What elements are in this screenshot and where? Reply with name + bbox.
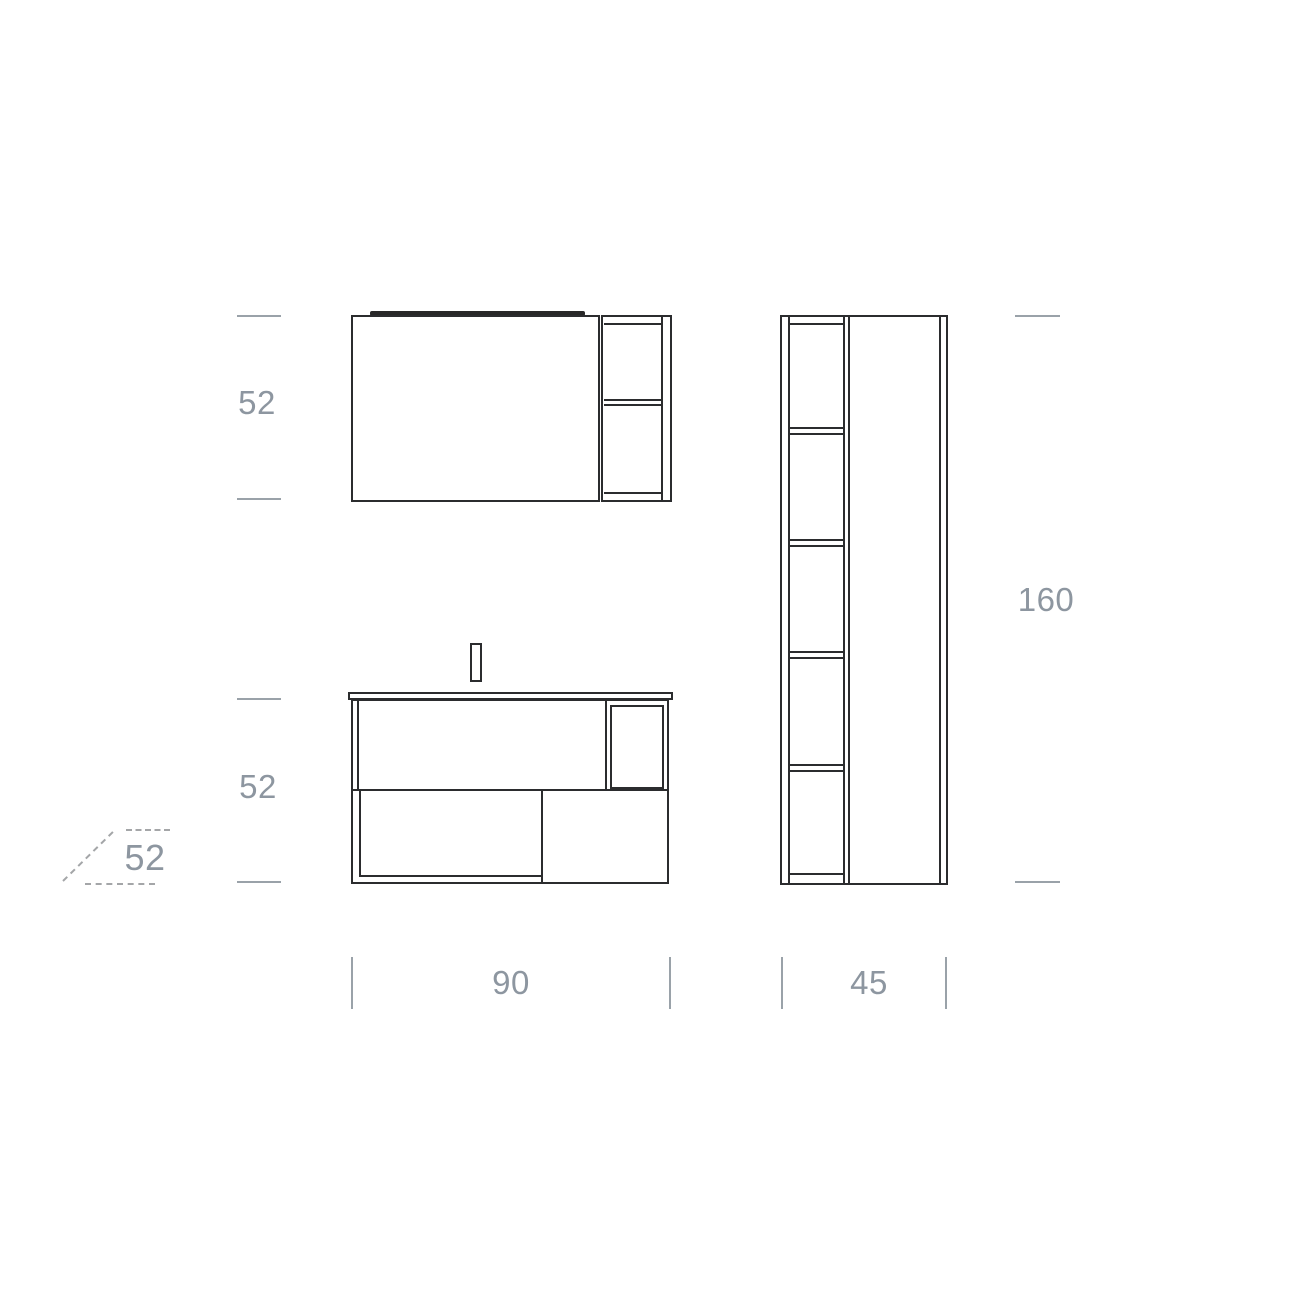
dim-label-tall-unit-height: 160 [986,583,1106,617]
tall-cabinet-shelf-line [790,539,843,541]
dim-tick [351,957,353,1009]
mirror-shelf-line [604,404,661,406]
tall-cabinet-shelf-line [790,545,843,547]
tall-cabinet-shelf-line [790,657,843,659]
tall-cabinet-shelf-line [790,651,843,653]
vanity-lower-cabinet [351,789,669,884]
dim-label-tall-unit-width: 45 [809,966,929,1000]
tall-cabinet-shelf-line [790,764,843,766]
dim-tick [781,957,783,1009]
tall-cabinet-side-panel-line [788,317,790,883]
tall-cabinet-bottom-inner-line [790,873,843,875]
vanity-open-shelf-bottom-line [359,875,543,877]
dim-tick [945,957,947,1009]
dim-tick [1015,881,1060,883]
mirror-cabinet [351,315,600,502]
dim-tick [237,498,281,500]
tall-cabinet-top-inner-line [790,323,843,325]
dim-label-depth: 52 [85,840,205,876]
dim-label-mirror-unit-height: 52 [197,386,317,420]
depth-dash-top [126,829,170,831]
mirror-shelf-top-line [604,323,661,325]
tall-cabinet-door-edge-line [939,317,941,883]
mirror-shelf-line [604,399,661,401]
dim-label-vanity-unit-height: 52 [198,770,318,804]
tall-cabinet-shelf-line [790,427,843,429]
vanity-door-panel [610,705,664,789]
dim-tick [237,881,281,883]
depth-dash-bottom [85,883,155,885]
vanity-upper-side-panel-line [357,701,359,789]
tall-cabinet-door-divider-line [843,317,845,883]
vanity-open-shelf-side-line [359,791,361,877]
dim-tick [1015,315,1060,317]
vanity-upper-divider-line [605,701,607,789]
dim-tick [237,315,281,317]
tall-cabinet-door-divider-line [848,317,850,883]
technical-drawing-canvas: 52 52 52 160 90 45 [0,0,1300,1300]
tall-cabinet-shelf-line [790,433,843,435]
tall-cabinet [780,315,948,885]
dim-label-vanity-unit-width: 90 [451,966,571,1000]
dim-tick [669,957,671,1009]
mirror-shelf-bottom-line [604,492,661,494]
dim-tick [237,698,281,700]
mirror-shelf-side-panel-line [661,317,663,500]
faucet [470,643,482,682]
vanity-lower-divider-line [541,791,543,882]
tall-cabinet-shelf-line [790,770,843,772]
